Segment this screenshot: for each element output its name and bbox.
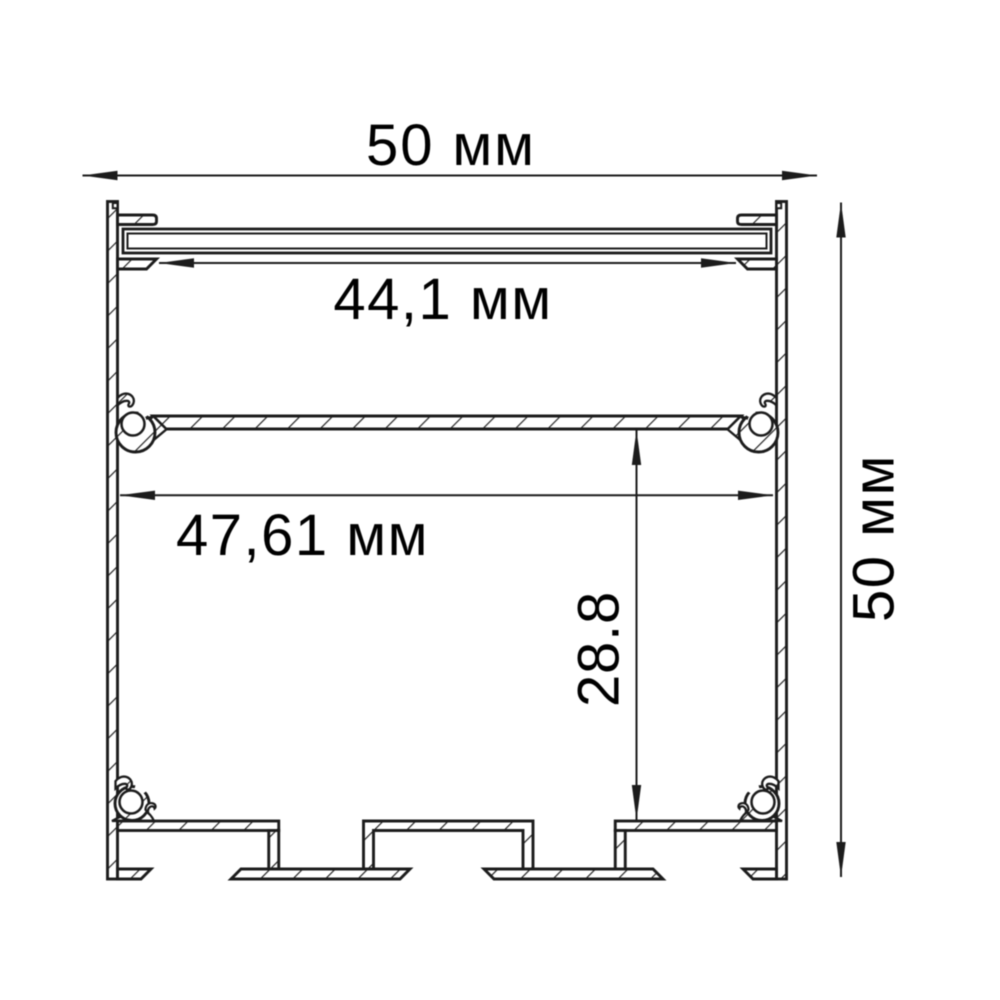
svg-text:47,61 мм: 47,61 мм bbox=[176, 503, 429, 568]
svg-text:50 мм: 50 мм bbox=[366, 113, 536, 178]
svg-text:44,1 мм: 44,1 мм bbox=[333, 267, 552, 332]
svg-text:28.8: 28.8 bbox=[567, 591, 632, 707]
svg-text:50 мм: 50 мм bbox=[842, 454, 907, 622]
